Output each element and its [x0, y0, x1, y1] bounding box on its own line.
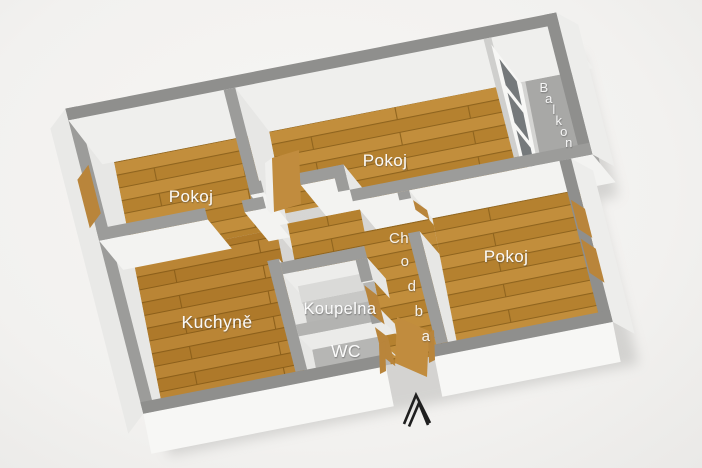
floorplan-image: Pokoj Pokoj Pokoj Kuchyně Koupelna WC Ch… — [0, 0, 702, 468]
room-label-pokoj-middle: Pokoj — [363, 151, 408, 170]
room-label-pokoj-left: Pokoj — [169, 187, 214, 206]
room-label-koupelna: Koupelna — [304, 300, 377, 318]
room-label-wc: WC — [331, 341, 361, 361]
floorplan-3d-view: Pokoj Pokoj Pokoj Kuchyně Koupelna WC Ch… — [0, 0, 702, 468]
room-label-pokoj-right: Pokoj — [484, 247, 529, 266]
room-label-kuchyne: Kuchyně — [182, 312, 253, 332]
